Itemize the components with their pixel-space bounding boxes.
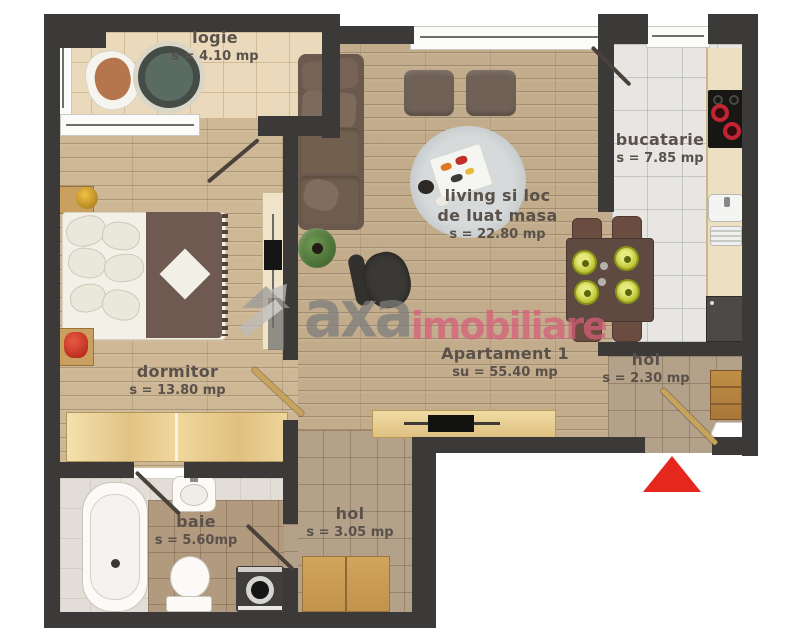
tray-food-item — [450, 173, 464, 183]
living-window — [410, 26, 610, 50]
room-label-hol-entrance: hol s = 2.30 mp — [600, 350, 692, 387]
hall-cabinet — [302, 556, 390, 612]
bathtub-drain — [111, 559, 120, 568]
wall-entrance-right — [712, 437, 758, 455]
blanket-fringe — [222, 214, 228, 336]
faucet — [724, 197, 730, 207]
room-name: dormitor — [105, 362, 250, 382]
burner-red — [723, 122, 741, 140]
wall-living-bottom — [412, 437, 645, 453]
sink-drainer — [710, 226, 742, 246]
dining-chair — [612, 216, 642, 240]
plate — [572, 250, 597, 275]
bedroom-tv — [264, 240, 282, 270]
toilet-tank — [166, 596, 212, 612]
watermark-logo-house-icon — [238, 282, 304, 352]
sink-basin — [180, 484, 208, 506]
room-area: s = 13.80 mp — [105, 383, 250, 399]
burner-ring — [729, 95, 739, 105]
room-area: s = 22.80 mp — [415, 227, 580, 243]
room-label-hol-lower: hol s = 3.05 mp — [298, 504, 402, 541]
room-name-line2: de luat masa — [415, 206, 580, 226]
wall-bath-hall-upper — [283, 478, 298, 524]
lamp-gold — [76, 187, 98, 209]
toilet-bowl — [170, 556, 210, 598]
plate — [615, 279, 640, 304]
window-glass-line — [62, 40, 64, 108]
washer-drum — [246, 576, 274, 604]
wardrobe-shelf — [711, 403, 741, 405]
wall-bedroom-bath-left — [44, 462, 134, 478]
wall-bedroom-bath-right — [184, 462, 284, 478]
watermark-brand-text: axa — [304, 276, 411, 352]
table-knob — [598, 278, 606, 286]
room-label-baie: baie s = 5.60mp — [135, 512, 257, 549]
fridge — [706, 296, 744, 342]
kitchen-window — [646, 26, 710, 48]
wall-lowerhall-right — [412, 447, 436, 628]
room-name: hol — [600, 350, 692, 370]
lamp-red — [64, 332, 88, 358]
bathroom-sink — [172, 476, 216, 512]
washer-panel — [238, 567, 282, 572]
wall-living-top — [336, 26, 414, 44]
room-name: baie — [135, 512, 257, 532]
room-area: s = 7.85 mp — [606, 151, 714, 167]
wall-bedroom-living-lower — [283, 420, 298, 478]
tray-food-item — [440, 162, 453, 172]
wall-left-exterior — [44, 14, 60, 628]
tray-food-item — [454, 155, 468, 166]
watermark-suffix-text: imobiliare — [411, 304, 606, 352]
plate-center — [582, 260, 589, 267]
wall-bottom-exterior — [44, 612, 436, 628]
cabinet-divider — [345, 557, 347, 611]
potted-plant — [298, 228, 336, 268]
table-knob — [600, 262, 608, 270]
plate-center — [584, 290, 591, 297]
wall-bath-hall-lower — [283, 568, 298, 612]
room-label-bucatarie: bucatarie s = 7.85 mp — [606, 130, 714, 167]
room-name: logie — [150, 28, 280, 48]
pouf — [404, 70, 454, 116]
plate-center — [625, 289, 632, 296]
plate-center — [624, 256, 631, 263]
room-area: s = 3.05 mp — [298, 525, 402, 541]
hall-wardrobe — [710, 370, 742, 420]
loggia-chair-cushion — [91, 55, 135, 104]
room-label-dormitor: dormitor s = 13.80 mp — [105, 362, 250, 399]
floor-plan: logie s = 4.10 mp bucatarie s = 7.85 mp … — [0, 0, 800, 634]
apartment-area: su = 55.40 mp — [420, 365, 590, 381]
window-glass-line — [652, 35, 704, 37]
entrance-arrow — [643, 456, 701, 492]
fridge-handle — [710, 301, 714, 305]
burner-red — [711, 104, 729, 122]
room-area: s = 5.60mp — [135, 533, 257, 549]
wardrobe-shelf — [711, 386, 741, 388]
wall-loggia-sill-right — [258, 116, 322, 136]
room-name: bucatarie — [606, 130, 714, 150]
bedroom-wardrobe — [66, 412, 288, 462]
pouf — [466, 70, 516, 116]
room-name: hol — [298, 504, 402, 524]
bathtub-inner — [90, 494, 140, 600]
wall-right-exterior — [742, 14, 758, 456]
room-label-living: living si loc de luat masa s = 22.80 mp — [415, 186, 580, 243]
wardrobe-divider — [175, 413, 178, 461]
room-area: s = 2.30 mp — [600, 371, 692, 387]
room-area: s = 4.10 mp — [150, 49, 280, 65]
room-name-line1: living si loc — [415, 186, 580, 206]
kitchen-sink — [708, 194, 744, 222]
living-tv — [428, 415, 474, 432]
tray-food-item — [464, 167, 474, 175]
tv-line-right — [474, 422, 500, 425]
plate — [614, 246, 639, 271]
tv-line-left — [404, 422, 428, 425]
plant-pot — [312, 243, 323, 254]
window-glass-line — [420, 36, 600, 38]
washer-base — [238, 606, 282, 610]
window-glass-line — [66, 124, 194, 126]
wall-kitchen-topleft — [598, 14, 648, 44]
watermark: axa imobiliare — [238, 276, 578, 352]
room-label-logie: logie s = 4.10 mp — [150, 28, 280, 65]
washing-machine — [236, 566, 284, 612]
